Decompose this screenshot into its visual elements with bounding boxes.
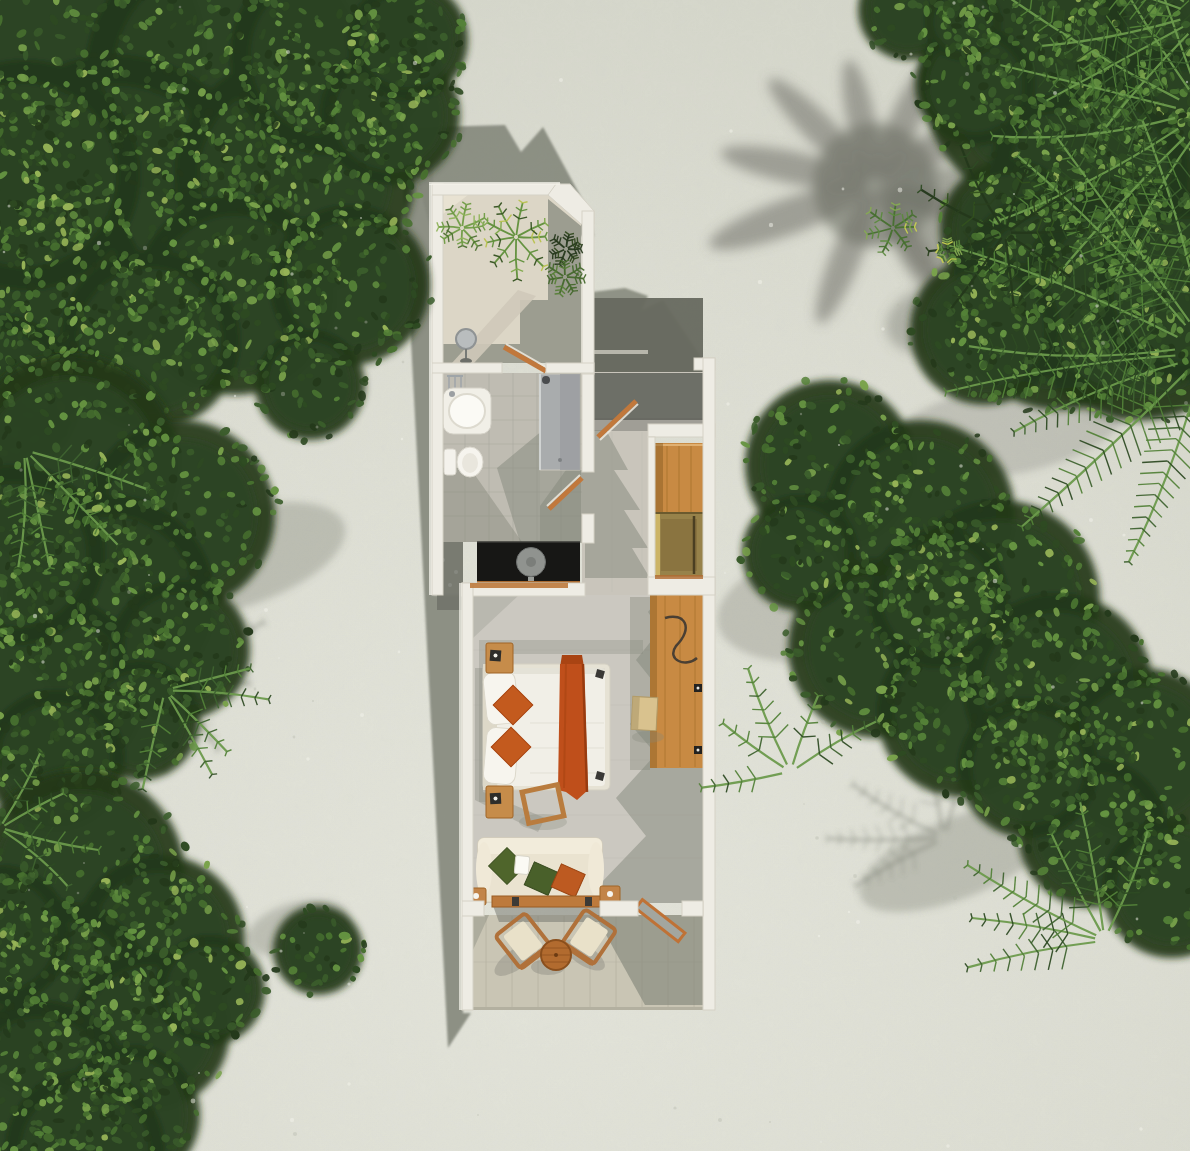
sand-speckle: [97, 241, 101, 245]
frond-leaflet: [555, 294, 560, 295]
sand-speckle: [279, 949, 282, 952]
sand-speckle-dark: [83, 1078, 86, 1081]
wall-courtyard-east: [582, 211, 594, 374]
sand-speckle: [1079, 254, 1083, 258]
sand-speckle-dark: [946, 636, 950, 640]
sand-speckle: [347, 1082, 350, 1085]
frond-leaflet: [868, 879, 869, 886]
frond-leaflet: [1062, 883, 1076, 884]
frond-leaflet: [573, 265, 574, 271]
frond-leaflet: [803, 736, 816, 737]
frond-leaflet: [1132, 517, 1146, 518]
closet-side-shade: [655, 443, 663, 513]
sand-speckle-dark: [293, 736, 296, 739]
frond-leaflet: [198, 748, 208, 749]
sand-speckle-dark: [1184, 401, 1188, 405]
villa-building: [429, 182, 715, 1010]
frond-leaflet: [555, 290, 561, 291]
shower-head: [542, 376, 550, 384]
sand-speckle-dark: [965, 72, 969, 76]
frond-leaflet: [218, 748, 223, 749]
sand-speckle: [881, 327, 885, 331]
closet-trim: [655, 575, 703, 579]
frond-leaflet: [1133, 382, 1134, 412]
sand-speckle-dark: [853, 874, 857, 878]
lamp-north-glow: [494, 654, 498, 658]
bathtub-faucet: [449, 391, 455, 397]
shower-drain: [558, 458, 562, 462]
sand-speckle-dark: [127, 590, 131, 594]
sand-speckle: [724, 572, 726, 574]
sand-speckle: [290, 272, 293, 275]
frond-leaflet: [865, 785, 866, 792]
sand-speckle: [1122, 533, 1125, 536]
stool-shadow: [632, 731, 664, 743]
wall-north: [432, 184, 560, 195]
sand-speckle: [286, 50, 290, 54]
sand-speckle-dark: [477, 1114, 479, 1116]
sand-speckle-dark: [19, 468, 22, 471]
console: [650, 595, 704, 768]
sand-speckle: [1089, 518, 1093, 522]
wall-closet-south: [648, 577, 715, 595]
frond-leaflet: [569, 284, 575, 285]
sand-speckle-dark: [188, 740, 192, 744]
side-table-cup: [473, 893, 479, 899]
sand-speckle: [401, 438, 404, 441]
sand-speckle-dark: [1101, 341, 1105, 345]
sand-speckle: [1186, 81, 1188, 83]
sand-speckle-dark: [312, 700, 314, 702]
frond-leaflet: [911, 210, 912, 215]
frond-leaflet: [1022, 182, 1030, 183]
sofa-tray-box: [514, 855, 530, 874]
sand-speckle: [33, 614, 37, 618]
sand-speckle-dark: [28, 889, 30, 891]
frond-leaflet: [1069, 89, 1070, 99]
frond-leaflet: [21, 788, 33, 789]
sand-speckle: [198, 1072, 200, 1074]
sand-speckle: [726, 402, 729, 405]
frond-leaflet: [549, 262, 550, 267]
sand-speckle-dark: [673, 1106, 676, 1109]
sand-speckle: [952, 1, 955, 4]
sand-speckle: [982, 548, 984, 550]
lamp-south-glow: [494, 797, 498, 801]
closet-niche-highlight: [655, 513, 660, 577]
sand-speckle: [191, 1099, 196, 1104]
closet-niche-inner: [661, 519, 697, 571]
frond-leaflet: [1130, 528, 1142, 529]
sand-speckle-dark: [815, 836, 819, 840]
sand-speckle: [917, 628, 920, 631]
frond-leaflet: [51, 793, 52, 800]
bathtub-basin: [449, 394, 485, 428]
frond-leaflet: [449, 218, 456, 219]
pad-speckle: [454, 570, 458, 574]
frond-leaflet: [1138, 120, 1143, 121]
frond-leaflet: [34, 765, 41, 766]
frond-leaflet: [1121, 248, 1133, 249]
sand-speckle: [818, 935, 821, 938]
wall-highlight: [429, 184, 432, 595]
sand-speckle: [885, 507, 889, 511]
sand-speckle-dark: [718, 1118, 722, 1122]
frond-leaflet: [39, 797, 40, 807]
frond-leaflet: [146, 489, 147, 494]
frond-leaflet: [1080, 82, 1081, 94]
frond-leaflet: [556, 286, 562, 287]
entry-passage-floor: [592, 298, 703, 374]
wall-south-east: [682, 901, 703, 916]
sand-speckle-dark: [281, 392, 285, 396]
wall-highlight: [459, 583, 462, 1010]
sand-speckle: [820, 1141, 822, 1143]
sand-speckle: [306, 757, 310, 761]
toilet-tank: [444, 449, 456, 475]
frond-leaflet: [1039, 259, 1040, 282]
frond-leaflet: [1017, 197, 1027, 198]
sand-speckle: [1018, 844, 1022, 848]
sand-speckle: [182, 87, 186, 91]
sand-speckle: [360, 217, 362, 219]
frond-leaflet: [575, 238, 576, 244]
frond-leaflet: [138, 789, 143, 790]
frond-leaflet: [27, 801, 28, 813]
sand-speckle: [234, 395, 236, 397]
frond-leaflet: [946, 307, 951, 308]
frond-leaflet: [1118, 905, 1137, 906]
sand-speckle-dark: [316, 426, 319, 429]
frond-leaflet: [250, 663, 251, 668]
frond-leaflet: [448, 236, 449, 242]
frond-leaflet: [991, 868, 992, 878]
frond-leaflet: [134, 485, 135, 492]
aerial-villa-scene: [0, 0, 1190, 1151]
shower-tray-shade: [560, 374, 580, 470]
wall-closet-west: [648, 437, 655, 580]
sand-speckle: [3, 251, 6, 254]
frond-leaflet: [994, 250, 995, 264]
frond-leaflet: [1017, 255, 1018, 273]
sand-speckle-dark: [293, 1132, 297, 1136]
sand-speckle: [842, 188, 845, 191]
console-handle-dot: [697, 749, 700, 752]
wall-highlight: [429, 182, 560, 185]
sand-speckle: [1051, 685, 1055, 689]
sand-speckle: [96, 629, 100, 633]
table-center: [554, 953, 558, 957]
render-canvas: [0, 0, 1190, 1151]
sand-speckle-dark: [128, 424, 130, 426]
frond-leaflet: [1005, 252, 1006, 268]
sand-speckle: [41, 660, 44, 663]
sand-speckle: [1141, 702, 1144, 705]
sand-speckle-dark: [953, 896, 957, 900]
frond-leaflet: [891, 867, 892, 879]
sand-speckle-dark: [971, 285, 974, 288]
frond-leaflet: [444, 239, 445, 244]
deck-edge: [473, 1007, 703, 1010]
frond-leaflet: [755, 723, 770, 724]
frond-leaflet: [879, 873, 880, 883]
frond-leaflet: [1122, 386, 1123, 414]
frond-leaflet: [1057, 95, 1058, 102]
frond-leaflet: [1039, 199, 1040, 213]
sand-speckle-dark: [897, 304, 900, 307]
frond-leaflet: [974, 202, 975, 217]
sand-speckle: [148, 574, 150, 576]
sand-speckle-dark: [364, 320, 367, 323]
sand-speckle-dark: [769, 1121, 771, 1123]
frond-leaflet: [1069, 907, 1088, 908]
wall-west-lower: [462, 583, 473, 1010]
frond-leaflet: [572, 239, 573, 245]
frond-leaflet: [979, 864, 980, 871]
sand-speckle: [413, 61, 417, 65]
frond-leaflet: [556, 265, 557, 271]
sand-speckle: [848, 911, 851, 914]
sand-speckle-dark: [402, 361, 405, 364]
sand-speckle-dark: [83, 862, 85, 864]
frond-leaflet: [1003, 872, 1004, 884]
sand-speckle-dark: [821, 720, 825, 724]
sand-speckle: [1013, 193, 1015, 195]
sand-speckle: [246, 906, 248, 908]
sand-speckle: [290, 1118, 294, 1122]
sand-speckle-dark: [1076, 681, 1078, 683]
wall-bath-east-stub: [582, 514, 594, 543]
frond-leaflet: [808, 723, 818, 724]
sand-speckle-dark: [875, 515, 877, 517]
frond-leaflet: [553, 264, 554, 270]
frond-leaflet: [98, 850, 99, 855]
frond-leaflet: [445, 209, 450, 210]
sand-speckle: [1053, 91, 1057, 95]
frond-leaflet: [15, 800, 29, 801]
frond-leaflet: [864, 721, 865, 728]
frond-leaflet: [1028, 257, 1029, 278]
closet: [655, 443, 703, 577]
side-table-cup: [607, 891, 613, 897]
wall-courtyard-bath-west: [432, 363, 502, 373]
frond-leaflet: [1028, 205, 1029, 217]
frond-leaflet: [967, 180, 979, 181]
frond-leaflet: [813, 709, 821, 710]
wall-east: [703, 358, 715, 1010]
frond-leaflet: [28, 776, 38, 777]
sand-speckle-dark: [303, 932, 305, 934]
sand-speckle: [898, 188, 903, 193]
frond-leaflet: [1128, 880, 1142, 881]
entry-sill: [594, 350, 648, 354]
frond-leaflet: [1070, 277, 1071, 282]
sand-speckle: [1095, 304, 1098, 307]
console-handle-dot: [697, 687, 700, 690]
frond-leaflet: [1134, 506, 1150, 507]
frond-leaflet: [960, 197, 961, 210]
frond-leaflet: [1155, 373, 1156, 407]
frond-leaflet: [1112, 391, 1113, 416]
sofa: [466, 838, 620, 907]
frond-leaflet: [928, 251, 929, 256]
sand-speckle-dark: [803, 803, 805, 805]
frond-leaflet: [452, 234, 453, 241]
sand-speckle: [946, 1144, 950, 1148]
sand-speckle-dark: [179, 6, 182, 9]
frond-leaflet: [758, 737, 776, 738]
frond-leaflet: [579, 263, 580, 268]
sofa-back: [478, 838, 602, 854]
frond-leaflet: [970, 192, 984, 193]
sand-speckle: [264, 608, 268, 612]
sand-speckle-dark: [901, 496, 903, 498]
sand-speckle-dark: [800, 413, 802, 415]
sand-speckle: [1139, 1127, 1143, 1131]
sand-speckle-dark: [1032, 249, 1035, 252]
frond-leaflet: [576, 264, 577, 270]
entry-passage: [592, 298, 703, 374]
frond-leaflet: [1101, 395, 1102, 418]
wall-south-west: [462, 901, 484, 916]
frond-leaflet: [496, 214, 502, 215]
frond-leaflet: [571, 287, 577, 288]
frond-leaflet: [870, 207, 871, 212]
frond-leaflet: [447, 214, 453, 215]
entry-inner-shadow: [582, 373, 703, 420]
sand-speckle: [909, 52, 912, 55]
sand-speckle-dark: [982, 6, 985, 9]
frond-leaflet: [205, 761, 213, 762]
wall-bath-east: [582, 374, 594, 472]
frond-leaflet: [1128, 539, 1138, 540]
frond-leaflet: [876, 716, 877, 721]
wall-west-upper: [432, 184, 443, 595]
sand-speckle: [1136, 918, 1139, 921]
sand-speckle: [8, 205, 11, 208]
sofa-rail-fitting: [585, 897, 592, 906]
frond-leaflet: [1065, 895, 1082, 896]
sand-speckle-dark: [1071, 197, 1075, 201]
console-shadow: [630, 597, 650, 770]
sand-speckle-dark: [334, 326, 337, 329]
frond-leaflet: [1072, 185, 1073, 190]
sand-speckle-dark: [143, 246, 147, 250]
frond-leaflet: [947, 193, 948, 203]
sofa-rail-fitting: [512, 897, 519, 906]
frond-leaflet: [974, 204, 990, 205]
vanity-mirror: [456, 329, 476, 349]
sand-speckle: [729, 129, 733, 133]
wall-south-mid: [600, 901, 638, 916]
frond-leaflet: [577, 237, 578, 242]
sand-speckle-dark: [254, 688, 257, 691]
frond-leaflet: [1090, 400, 1091, 421]
threshold-trim: [470, 583, 568, 588]
wall-courtyard-bath-east: [546, 363, 594, 373]
frond-leaflet: [853, 780, 854, 785]
frond-leaflet: [1123, 892, 1140, 893]
frond-leaflet: [1114, 270, 1121, 271]
pad-speckle: [448, 583, 452, 587]
frond-leaflet: [1052, 137, 1057, 138]
frond-leaflet: [499, 221, 507, 222]
sand-speckle: [347, 982, 350, 985]
sand-speckle: [838, 444, 840, 446]
vanity-basin-drain: [526, 557, 536, 567]
frond-leaflet: [1133, 868, 1145, 869]
sand-speckle: [559, 78, 563, 82]
sand-speckle: [398, 651, 401, 654]
sand-speckle: [143, 498, 146, 501]
sand-speckle: [959, 464, 963, 468]
frond-leaflet: [999, 60, 1000, 65]
frond-leaflet: [866, 234, 867, 239]
sand-speckle-dark: [77, 892, 80, 895]
sand-speckle-dark: [1144, 429, 1146, 431]
frond-leaflet: [1058, 871, 1070, 872]
sand-speckle: [993, 579, 998, 584]
sand-speckle: [856, 920, 860, 924]
sand-speckle: [769, 223, 773, 227]
frond-leaflet: [1139, 131, 1146, 132]
sand-speckle: [360, 713, 364, 717]
sand-speckle: [1117, 320, 1120, 323]
sand-speckle: [758, 280, 762, 284]
sand-speckle: [278, 657, 280, 659]
toilet-seat: [462, 453, 478, 473]
